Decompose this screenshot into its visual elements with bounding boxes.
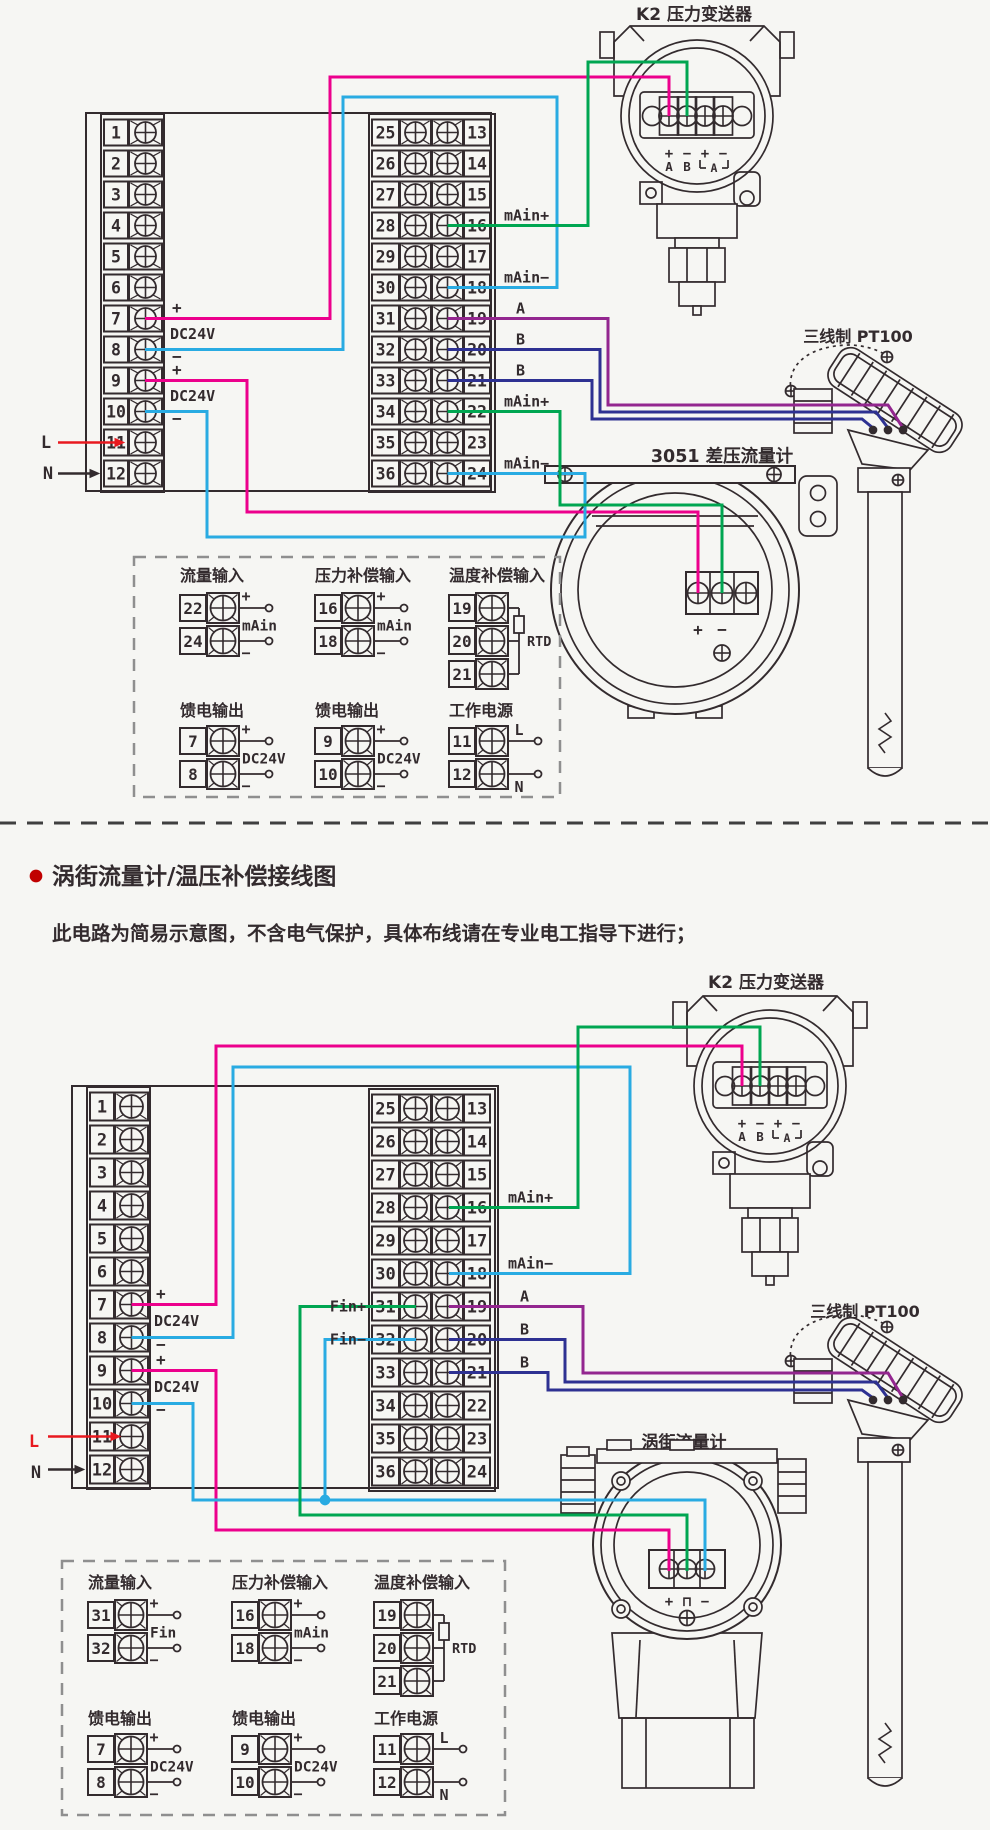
polarity-sign: − bbox=[376, 777, 385, 795]
terminal-number: 9 bbox=[111, 371, 121, 390]
polarity-sign: − bbox=[149, 1651, 158, 1669]
legend-group: 馈电输出910+−DC24V bbox=[232, 1709, 338, 1803]
shape bbox=[679, 282, 715, 306]
pt100-sensor bbox=[786, 342, 968, 776]
signal-label: A bbox=[516, 300, 525, 318]
screw-icon bbox=[405, 277, 426, 298]
line-sign: L bbox=[439, 1729, 448, 1747]
terminal-number: 32 bbox=[91, 1639, 110, 1658]
screw-icon bbox=[405, 153, 426, 174]
shape bbox=[853, 1002, 867, 1028]
terminal-number: 7 bbox=[188, 732, 198, 751]
circle bbox=[612, 1600, 630, 1618]
polarity-sign: + bbox=[376, 587, 385, 605]
legend-group-title: 馈电输出 bbox=[315, 701, 379, 720]
k2-label: K2 压力变送器 bbox=[636, 4, 753, 25]
polarity-sign: − bbox=[376, 644, 385, 662]
legend-signal-label: DC24V bbox=[150, 1760, 194, 1776]
screw-icon bbox=[135, 215, 156, 236]
legend-group: 馈电输出78+−DC24V bbox=[180, 701, 286, 795]
terminal-number: 28 bbox=[375, 1199, 395, 1219]
circle bbox=[813, 1161, 827, 1175]
k2-loop-ammeter-label: A bbox=[711, 161, 718, 175]
terminal-number: 16 bbox=[235, 1606, 254, 1625]
terminal-number: 24 bbox=[183, 632, 202, 651]
terminal-number: 26 bbox=[375, 1133, 395, 1153]
polarity-sign: − bbox=[241, 644, 250, 662]
terminal-number: 33 bbox=[375, 1364, 395, 1384]
terminal-number: 24 bbox=[467, 1463, 487, 1483]
section-bullet bbox=[31, 871, 42, 882]
screw-icon bbox=[893, 1445, 904, 1456]
diagram-canvas: K2 压力变送器三线制 PT1003051 差压流量计+−+−ABA+−1234… bbox=[0, 0, 990, 1830]
screw-icon bbox=[120, 1227, 143, 1250]
shape bbox=[600, 32, 614, 58]
screw-icon bbox=[404, 1163, 427, 1186]
shape bbox=[673, 1002, 687, 1028]
screw-icon bbox=[436, 1130, 459, 1153]
terminal-number: 2 bbox=[111, 154, 121, 173]
screw-icon bbox=[120, 1095, 143, 1118]
pin-icon bbox=[401, 605, 408, 612]
legend-group-title: 流量输入 bbox=[180, 566, 244, 585]
terminal-number: 22 bbox=[467, 1397, 487, 1417]
k2-terminal-sign: − bbox=[719, 146, 727, 162]
screw-icon bbox=[436, 1229, 459, 1252]
signal-label: Fin+ bbox=[330, 1298, 366, 1316]
polarity-sign: − bbox=[293, 1785, 302, 1803]
screw-icon bbox=[404, 1262, 427, 1285]
screw-icon bbox=[120, 1260, 143, 1283]
legend-signal-label: DC24V bbox=[242, 752, 286, 768]
k2-pressure-transmitter: +−+−ABA bbox=[673, 996, 867, 1285]
terminal-number: 18 bbox=[318, 632, 337, 651]
meter-terminal-sign: − bbox=[701, 1594, 709, 1610]
shape bbox=[669, 248, 725, 282]
terminal-number: 10 bbox=[92, 1395, 112, 1415]
screw-icon bbox=[405, 1669, 430, 1694]
screw-icon bbox=[405, 339, 426, 360]
line bbox=[630, 26, 644, 41]
shape bbox=[567, 1447, 589, 1456]
screw-icon bbox=[480, 596, 505, 621]
screw-icon bbox=[882, 352, 893, 363]
polarity-sign: + bbox=[241, 720, 250, 738]
legend-group: 压力补偿输入1618+−mAin bbox=[315, 566, 412, 662]
shape bbox=[657, 204, 737, 238]
signal-label: mAin− bbox=[504, 269, 549, 287]
rtd-resistor bbox=[514, 616, 524, 633]
psu-dc24v: DC24V bbox=[154, 1312, 199, 1330]
terminal-number: 9 bbox=[240, 1740, 250, 1759]
polarity-sign: + bbox=[149, 1728, 158, 1746]
shape bbox=[670, 1440, 694, 1450]
signal-label: mAin+ bbox=[504, 207, 549, 225]
signal-label: Fin− bbox=[330, 1331, 366, 1349]
terminal-number: 13 bbox=[467, 1100, 487, 1120]
shape bbox=[868, 492, 902, 768]
k2-pressure-transmitter: +−+−ABA bbox=[600, 26, 794, 315]
signal-label: mAin+ bbox=[508, 1189, 553, 1207]
line bbox=[703, 996, 717, 1011]
polarity-sign: + bbox=[293, 1728, 302, 1746]
pin-icon bbox=[266, 738, 273, 745]
screw-icon bbox=[263, 1770, 288, 1795]
terminal-number: 9 bbox=[97, 1362, 107, 1382]
screw-icon bbox=[404, 1427, 427, 1450]
psu-minus: − bbox=[156, 1400, 166, 1419]
signal-label: A bbox=[520, 1288, 529, 1306]
meter-label: 3051 差压流量计 bbox=[651, 446, 794, 467]
terminal-number: 14 bbox=[467, 1133, 487, 1153]
polarity-sign: − bbox=[149, 1785, 158, 1803]
pin-icon bbox=[266, 771, 273, 778]
terminal-number: 15 bbox=[467, 185, 487, 204]
screw-icon bbox=[405, 432, 426, 453]
legend-group-title: 馈电输出 bbox=[88, 1709, 152, 1728]
k2-loop-ammeter-label: A bbox=[784, 1131, 791, 1145]
legend-box: 流量输入2224+−mAin压力补偿输入1618+−mAin温度补偿输入1920… bbox=[134, 557, 560, 797]
legend-group: 馈电输出78+−DC24V bbox=[88, 1709, 194, 1803]
screw-icon bbox=[120, 1128, 143, 1151]
terminal-number: 1 bbox=[111, 123, 121, 142]
screw-icon bbox=[120, 1425, 143, 1448]
pin-icon bbox=[174, 1645, 181, 1652]
screw-icon bbox=[404, 1361, 427, 1384]
legend-signal-label: DC24V bbox=[377, 752, 421, 768]
shape bbox=[622, 1718, 754, 1788]
terminal-number: 10 bbox=[235, 1773, 254, 1792]
line bbox=[734, 1640, 738, 1717]
screw-icon bbox=[713, 106, 733, 126]
shape bbox=[823, 1312, 968, 1427]
screw-icon bbox=[404, 1394, 427, 1417]
line bbox=[636, 1640, 640, 1717]
pin-icon bbox=[318, 1612, 325, 1619]
terminal-number: 8 bbox=[97, 1329, 107, 1349]
terminal-number: 4 bbox=[97, 1197, 107, 1217]
screw-icon bbox=[405, 184, 426, 205]
shape bbox=[713, 1152, 735, 1174]
terminal-number: 3 bbox=[111, 185, 121, 204]
polarity-sign: − bbox=[293, 1651, 302, 1669]
pin-icon bbox=[266, 638, 273, 645]
legend-signal-label: Fin bbox=[150, 1626, 176, 1642]
pin-icon bbox=[535, 771, 542, 778]
terminal-number: 12 bbox=[106, 464, 126, 483]
terminal-number: 17 bbox=[467, 1232, 487, 1252]
rtd-label: RTD bbox=[452, 1641, 476, 1657]
psu-dc24v: DC24V bbox=[154, 1378, 199, 1396]
legend-group-title: 工作电源 bbox=[449, 701, 513, 720]
signal-label: mAin− bbox=[504, 455, 549, 473]
pt100-terminal-dot bbox=[885, 427, 892, 434]
legend-signal-label: mAin bbox=[242, 619, 277, 635]
psu-minus: − bbox=[172, 409, 182, 428]
section2-vortex-wiring-diagram: K2 压力变送器三线制 PT100涡街流量计+−+−ABA+⊓−12345678… bbox=[29, 972, 967, 1815]
rtd-resistor bbox=[439, 1623, 449, 1640]
shape bbox=[766, 1276, 774, 1285]
circle bbox=[646, 188, 656, 198]
section-subtitle: 此电路为简易示意图，不含电气保护，具体布线请在专业电工指导下进行； bbox=[52, 922, 696, 945]
pin-icon bbox=[401, 771, 408, 778]
legend-group-title: 压力补偿输入 bbox=[232, 1573, 328, 1592]
circle bbox=[744, 1472, 762, 1490]
legend-group-title: 馈电输出 bbox=[232, 1709, 296, 1728]
meter-terminal-sign: + bbox=[693, 620, 703, 639]
legend-group-title: 压力补偿输入 bbox=[315, 566, 411, 585]
terminal-number: 8 bbox=[188, 765, 198, 784]
psu-dc24v: DC24V bbox=[170, 387, 215, 405]
terminal-number: 12 bbox=[92, 1461, 112, 1481]
line bbox=[823, 996, 837, 1011]
screw-icon bbox=[405, 246, 426, 267]
legend-signal-label: mAin bbox=[377, 619, 412, 635]
screw-icon bbox=[135, 277, 156, 298]
screw-icon bbox=[346, 729, 371, 754]
shape bbox=[748, 1208, 792, 1218]
screw-icon bbox=[437, 122, 458, 143]
wire-junction-dot bbox=[321, 1496, 330, 1505]
screw-icon bbox=[882, 1322, 893, 1333]
terminal-number: 19 bbox=[377, 1606, 396, 1625]
screw-icon bbox=[263, 1603, 288, 1628]
meter-terminal-sign: + bbox=[665, 1594, 673, 1610]
pin-icon bbox=[318, 1645, 325, 1652]
terminal-number: 12 bbox=[452, 765, 471, 784]
pin-icon bbox=[174, 1779, 181, 1786]
screw-icon bbox=[405, 1603, 430, 1628]
terminal-number: 25 bbox=[376, 123, 396, 142]
screw-icon bbox=[768, 1076, 788, 1096]
arrow-head bbox=[75, 1466, 84, 1474]
legend-group: 流量输入3132+−Fin bbox=[88, 1573, 181, 1669]
legend-group-title: 流量输入 bbox=[88, 1573, 152, 1592]
screw-icon bbox=[405, 1770, 430, 1795]
screw-icon bbox=[404, 1229, 427, 1252]
screw-icon bbox=[405, 1636, 430, 1661]
probe-tip bbox=[868, 768, 902, 776]
k2-terminal-label: B bbox=[756, 1129, 764, 1144]
pin-icon bbox=[266, 605, 273, 612]
legend-group-title: 温度补偿输入 bbox=[448, 566, 545, 585]
screw-icon bbox=[437, 432, 458, 453]
screw-icon bbox=[211, 762, 236, 787]
screw-icon bbox=[404, 1130, 427, 1153]
legend-group-power: 工作电源1112LN bbox=[449, 701, 542, 796]
screw-icon bbox=[680, 1611, 695, 1626]
screw-icon bbox=[135, 246, 156, 267]
legend-group-title: 工作电源 bbox=[374, 1709, 438, 1728]
meter-terminal-sign: ⊓ bbox=[683, 1594, 692, 1610]
pin-icon bbox=[535, 738, 542, 745]
terminal-number: 21 bbox=[377, 1672, 396, 1691]
psu-plus: + bbox=[156, 1350, 166, 1369]
k2-label: K2 压力变送器 bbox=[708, 972, 825, 993]
vortex-flowmeter: +⊓− bbox=[561, 1440, 806, 1788]
legend-group: 流量输入2224+−mAin bbox=[180, 566, 277, 662]
terminal-number: 16 bbox=[318, 599, 337, 618]
terminal-number: 7 bbox=[111, 309, 121, 328]
terminal-number: 6 bbox=[111, 278, 121, 297]
screw-icon bbox=[405, 122, 426, 143]
screw-icon bbox=[346, 762, 371, 787]
screw-icon bbox=[119, 1770, 144, 1795]
terminal-number: 30 bbox=[375, 1265, 395, 1285]
recorder-middle-terminal-block: 2513261427152816291730183119322033213422… bbox=[369, 114, 495, 492]
terminal-number: 35 bbox=[376, 433, 396, 452]
shape bbox=[778, 1459, 806, 1513]
pt100-head bbox=[823, 1312, 968, 1427]
signal-label: B bbox=[516, 331, 525, 349]
screw-icon bbox=[436, 1427, 459, 1450]
pt100-terminal-dot bbox=[900, 1397, 907, 1404]
screw-icon bbox=[346, 629, 371, 654]
pin-icon bbox=[174, 1612, 181, 1619]
signal-label: B bbox=[516, 362, 525, 380]
screw-icon bbox=[405, 308, 426, 329]
terminal-number: 34 bbox=[375, 1397, 395, 1417]
shape bbox=[742, 1218, 798, 1252]
screw-icon bbox=[893, 475, 904, 486]
screw-icon bbox=[405, 215, 426, 236]
polarity-sign: + bbox=[241, 587, 250, 605]
terminal-number: 6 bbox=[97, 1263, 107, 1283]
screw-icon bbox=[119, 1603, 144, 1628]
screw-icon bbox=[120, 1458, 143, 1481]
terminal-number: 5 bbox=[97, 1230, 107, 1250]
signal-label: mAin− bbox=[508, 1255, 553, 1273]
pin-icon bbox=[401, 638, 408, 645]
k2-terminal-sign: − bbox=[792, 1116, 800, 1132]
signal-label: B bbox=[520, 1354, 529, 1372]
signal-label: mAin+ bbox=[504, 393, 549, 411]
pin-icon bbox=[460, 1746, 467, 1753]
screw-icon bbox=[714, 645, 730, 661]
meter-terminal-sign: − bbox=[717, 620, 727, 639]
k2-terminal-label: B bbox=[683, 159, 691, 174]
terminal-number: 15 bbox=[467, 1166, 487, 1186]
shape bbox=[730, 1174, 810, 1208]
screw-icon bbox=[436, 1163, 459, 1186]
shape bbox=[607, 1440, 631, 1450]
pt100-label: 三线制 PT100 bbox=[803, 327, 913, 346]
terminal-number: 12 bbox=[377, 1773, 396, 1792]
legend-group: 馈电输出910+−DC24V bbox=[315, 701, 421, 795]
terminal-number: 11 bbox=[377, 1740, 396, 1759]
screw-icon bbox=[767, 468, 781, 482]
terminal-number: 35 bbox=[375, 1430, 395, 1450]
circle bbox=[740, 191, 754, 205]
pt100-terminal-dot bbox=[870, 1397, 877, 1404]
screw-icon bbox=[405, 1737, 430, 1762]
pt100-terminal-dot bbox=[870, 427, 877, 434]
screw-icon bbox=[404, 1097, 427, 1120]
terminal-number: 3 bbox=[97, 1164, 107, 1184]
screw-icon bbox=[135, 432, 156, 453]
screw-icon bbox=[480, 629, 505, 654]
section-title: 涡街流量计/温压补偿接线图 bbox=[52, 863, 336, 890]
k2-terminal-label: A bbox=[665, 159, 673, 174]
line-sign: L bbox=[514, 721, 523, 739]
terminal-number: 33 bbox=[376, 371, 396, 390]
shape bbox=[597, 1449, 777, 1463]
polarity-sign: + bbox=[376, 720, 385, 738]
mains-live-label: L bbox=[29, 1432, 39, 1452]
wire-dc24v2-minus bbox=[145, 412, 585, 538]
terminal-number: 10 bbox=[106, 402, 126, 421]
screw-icon bbox=[135, 122, 156, 143]
screw-icon bbox=[120, 1194, 143, 1217]
terminal-number: 31 bbox=[91, 1606, 110, 1625]
terminal-number: 36 bbox=[375, 1463, 395, 1483]
terminal-number: 14 bbox=[467, 154, 487, 173]
terminal-number: 11 bbox=[452, 732, 471, 751]
rtd-label: RTD bbox=[527, 634, 551, 650]
terminal-number: 8 bbox=[96, 1773, 106, 1792]
terminal-number: 32 bbox=[376, 340, 396, 359]
psu-plus: + bbox=[172, 298, 182, 317]
wiring-diagram-page: K2 压力变送器三线制 PT1003051 差压流量计+−+−ABA+−1234… bbox=[0, 0, 990, 1830]
pin-icon bbox=[460, 1779, 467, 1786]
screw-icon bbox=[211, 596, 236, 621]
pt100-head bbox=[823, 342, 968, 457]
shape bbox=[868, 1462, 902, 1778]
terminal-number: 8 bbox=[111, 340, 121, 359]
screw-icon bbox=[437, 153, 458, 174]
pin-icon bbox=[318, 1779, 325, 1786]
terminal-number: 23 bbox=[467, 1430, 487, 1450]
legend-group-title: 温度补偿输入 bbox=[373, 1573, 470, 1592]
shape bbox=[823, 342, 968, 457]
pin-icon bbox=[174, 1746, 181, 1753]
terminal-number: 17 bbox=[467, 247, 487, 266]
terminal-number: 7 bbox=[97, 1296, 107, 1316]
screw-icon bbox=[437, 246, 458, 267]
legend-group: 压力补偿输入1618+−mAin bbox=[232, 1573, 329, 1669]
probe-tip bbox=[868, 1778, 902, 1786]
terminal-number: 27 bbox=[376, 185, 396, 204]
screw-icon bbox=[346, 596, 371, 621]
terminal-number: 20 bbox=[377, 1639, 396, 1658]
terminal-number: 13 bbox=[467, 123, 487, 142]
k2-terminal-sign: + bbox=[701, 146, 709, 162]
terminal-number: 22 bbox=[183, 599, 202, 618]
screw-icon bbox=[405, 401, 426, 422]
polarity-sign: + bbox=[149, 1594, 158, 1612]
recorder-left-terminal-block: 123456789101112 bbox=[101, 114, 164, 492]
terminal-number: 21 bbox=[452, 665, 471, 684]
terminal-number: 29 bbox=[376, 247, 396, 266]
pin-icon bbox=[401, 738, 408, 745]
pt100-terminal-dot bbox=[900, 427, 907, 434]
line-sign: N bbox=[514, 778, 523, 796]
circle bbox=[612, 1472, 630, 1490]
legend-group-title: 馈电输出 bbox=[180, 701, 244, 720]
screw-icon bbox=[436, 1394, 459, 1417]
section1-dp-wiring-diagram: K2 压力变送器三线制 PT1003051 差压流量计+−+−ABA+−1234… bbox=[41, 4, 967, 797]
terminal-number: 20 bbox=[452, 632, 471, 651]
legend-group-power: 工作电源1112LN bbox=[374, 1709, 467, 1804]
screw-icon bbox=[480, 729, 505, 754]
terminal-number: 7 bbox=[96, 1740, 106, 1759]
screw-icon bbox=[404, 1196, 427, 1219]
screw-icon bbox=[135, 463, 156, 484]
terminal-number: 36 bbox=[376, 464, 396, 483]
screw-icon bbox=[436, 1460, 459, 1483]
signal-label: B bbox=[520, 1321, 529, 1339]
screw-icon bbox=[263, 1636, 288, 1661]
